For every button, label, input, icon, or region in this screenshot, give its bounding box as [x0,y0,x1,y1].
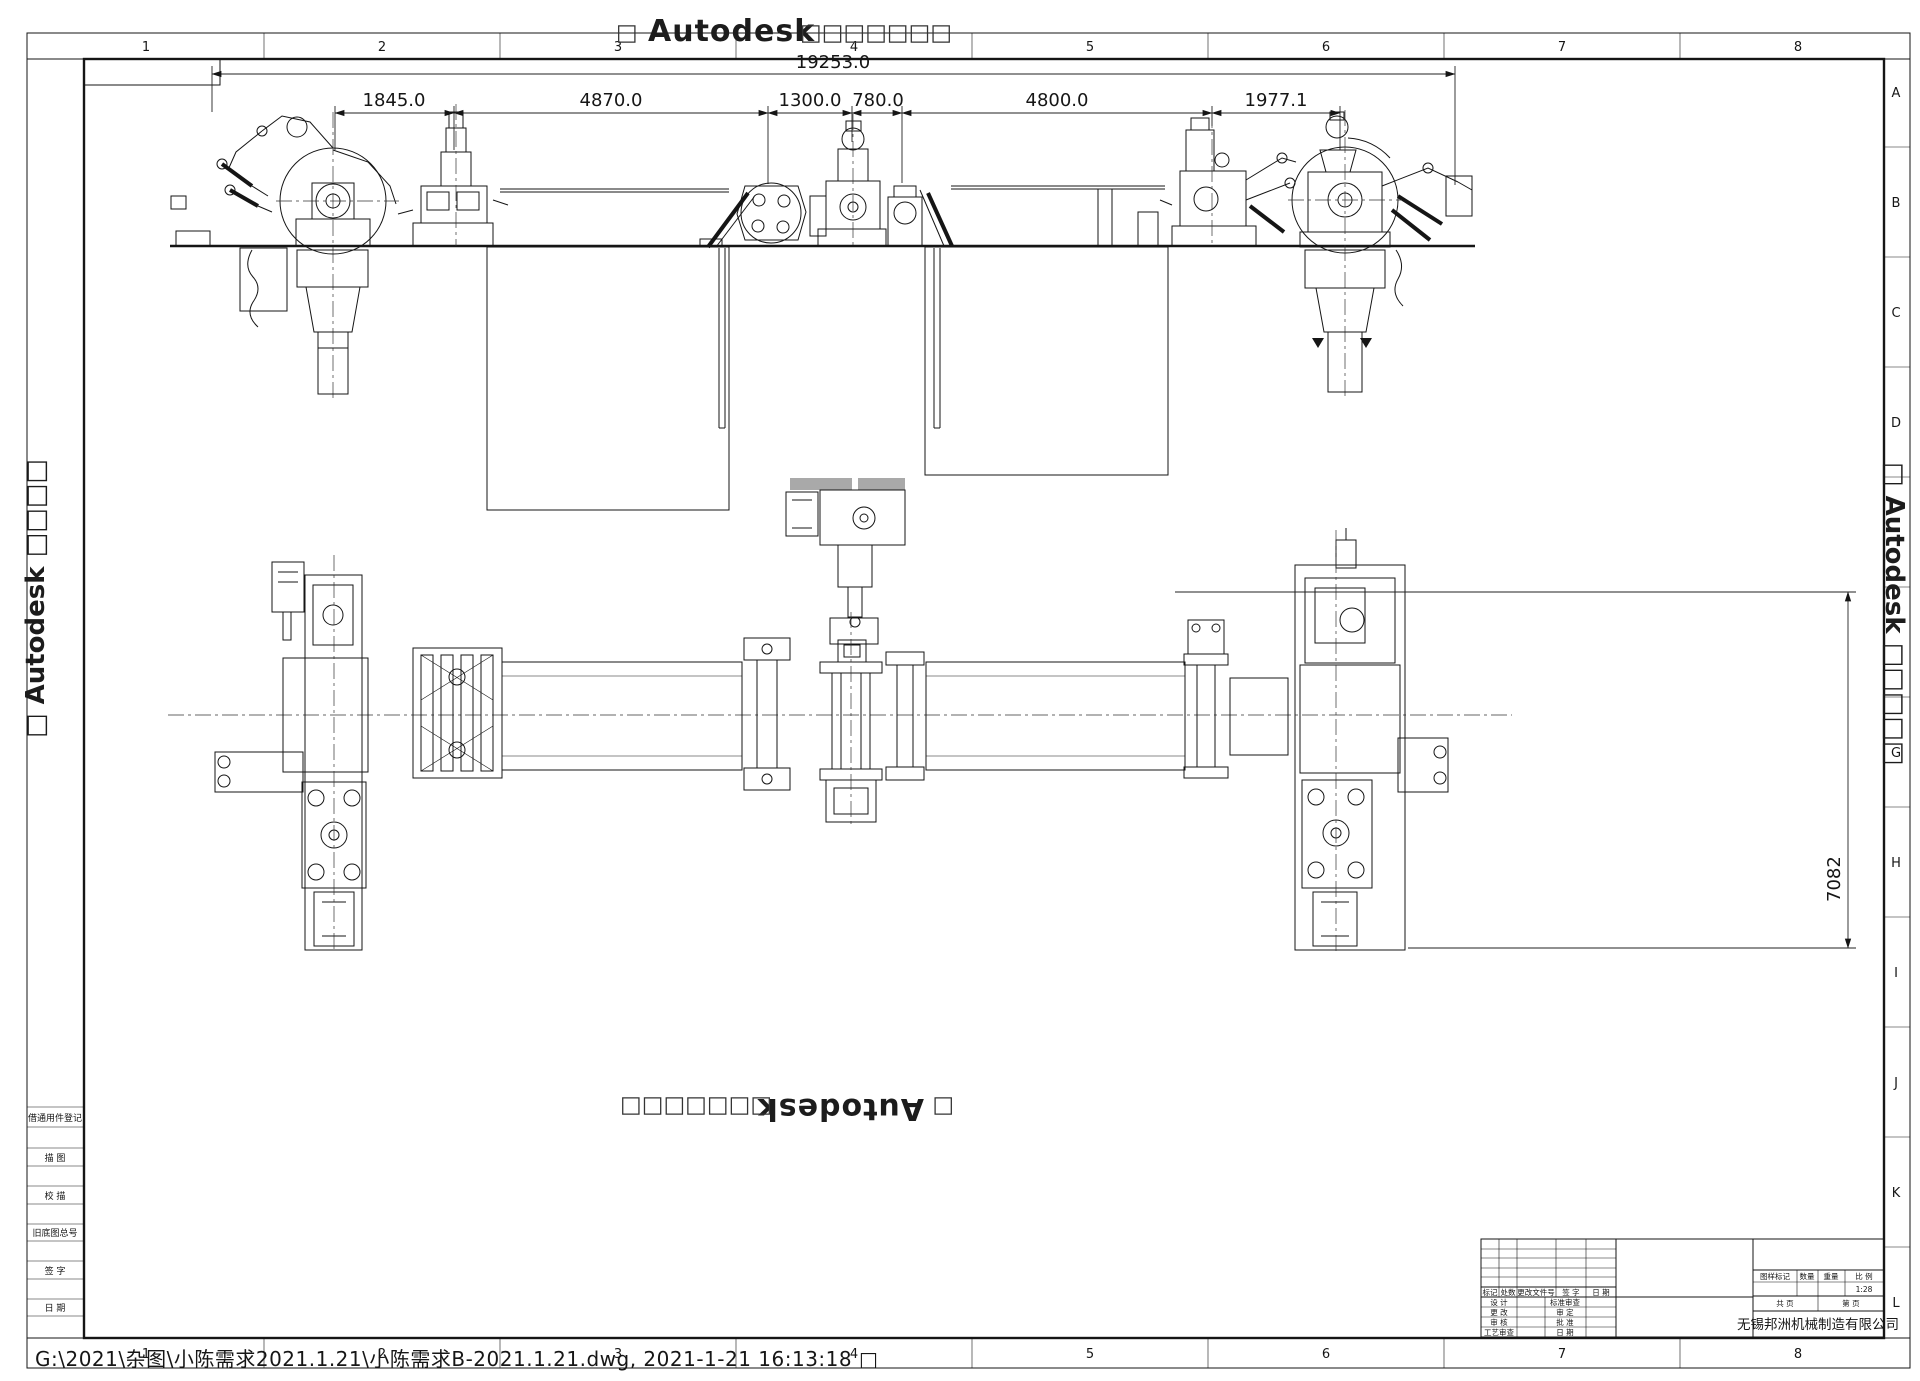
table-plan-1 [502,662,742,770]
bridle-roll-plan-1 [744,638,790,790]
sign-label: 标准审查 [1550,1297,1580,1307]
watermark-boxes: □□□□□□□ [800,20,952,46]
watermark-right: □ Autodesk □□□□□ [1879,462,1909,765]
cad-drawing-sheet: 1 2 3 4 5 6 7 8 1 2 3 4 5 6 7 8 A B C D … [0,0,1920,1381]
zone-number: 8 [1794,1347,1802,1362]
sign-label: 日 期 [1556,1328,1573,1337]
loop-pit-2 [925,247,1168,475]
dimension-overall: 19253.0 [212,52,1455,185]
dimension-plan-height: 7082 [1175,592,1856,948]
drawing-name-boxes [1616,1239,1753,1337]
zone-letter: C [1891,306,1900,321]
sign-label: 批 准 [1556,1317,1574,1327]
autodesk-watermark: Autodesk [648,14,815,49]
zone-number: 7 [1558,40,1566,55]
watermark-boxes: □□□□□□□ [620,1094,772,1120]
watermark-bottom: □ Autodesk □□□□□□□ [620,1091,954,1126]
exit-roll-stand-plan [1184,620,1228,778]
sheet-border [27,33,1910,1368]
pages-total: 共 页 [1776,1299,1794,1308]
entry-roll-stand-plan [413,648,502,778]
zone-number: 2 [378,40,386,55]
info-table: 图样标记 数量 重量 比 例 1:28 共 页 第 页 无锡邦洲机械制造有限公司 [1737,1239,1899,1337]
revision-header-row: 标记 处数 更改文件号 签 字 日 期 [1483,1287,1610,1297]
rev-header-cell: 标记 [1483,1287,1499,1297]
recoiler-elevation [1288,110,1472,399]
info-header-cell: 图样标记 [1760,1271,1790,1281]
side-strip-label: 旧底图总号 [32,1227,77,1239]
decoiler-elevation [217,112,399,399]
side-strip-label: 借通用件登记 [28,1112,82,1124]
watermark-box: □ [932,1094,954,1120]
zone-letter: K [1892,1186,1901,1201]
rev-header-cell: 处数 [1501,1287,1517,1297]
zone-letter: J [1893,1076,1898,1091]
dim-segment-value: 780.0 [852,90,904,111]
zone-letter: I [1894,966,1898,981]
zone-number: 6 [1322,40,1330,55]
zone-number: 5 [1086,40,1094,55]
sign-label: 更 改 [1490,1307,1508,1317]
elevation-view [170,104,1475,510]
file-path-text: G:\2021\杂图\小陈需求2021.1.21\小陈需求B-2021.1.21… [35,1347,878,1371]
dim-plan-height-value: 7082 [1824,856,1845,902]
rev-header-cell: 日 期 [1592,1288,1609,1297]
side-strip-label: 签 字 [45,1265,66,1277]
zone-letter: A [1892,86,1901,101]
loop-pit-gate [700,183,806,247]
dim-segment-value: 1977.1 [1245,90,1308,111]
side-strip-label: 日 期 [45,1303,66,1314]
info-header-cell: 数量 [1800,1271,1816,1281]
straightener-elevation [810,114,886,246]
feed-leveler-elevation [398,104,508,246]
zone-number: 1 [142,40,150,55]
overhead-drive-plan [786,478,905,627]
dim-segment-value: 4870.0 [580,90,643,111]
sign-label: 设 计 [1490,1297,1508,1307]
loop-post-1 [719,248,725,428]
rev-header-cell: 更改文件号 [1517,1287,1555,1297]
zone-number: 7 [1558,1347,1566,1362]
drawing-canvas: 1 2 3 4 5 6 7 8 1 2 3 4 5 6 7 8 A B C D … [0,0,1920,1381]
side-strip-label: 校 描 [45,1190,66,1202]
uncoiler-plan [215,555,368,952]
zone-number: 6 [1322,1347,1330,1362]
zone-number: 5 [1086,1347,1094,1362]
zone-letter: B [1892,196,1901,211]
side-label-strip: 借通用件登记 描 图 校 描 旧底图总号 签 字 日 期 [27,1107,84,1316]
top-zone-dividers [264,33,1680,59]
dim-segment-value: 1845.0 [363,90,426,111]
pages-current: 第 页 [1842,1298,1860,1308]
shear-plan [820,612,882,828]
bridle-roll-plan-2 [886,652,924,780]
zone-number: 8 [1794,40,1802,55]
zone-letter: L [1892,1296,1900,1311]
zone-letter: H [1891,856,1901,871]
loop-post-2 [934,248,940,428]
table-plan-2 [926,662,1185,770]
watermark-top: □ Autodesk □□□□□□□ [616,14,952,49]
zone-letter: D [1891,416,1901,431]
title-block: 标记 处数 更改文件号 签 字 日 期 设 计 更 改 审 核 工艺审查 标准审… [1481,1239,1899,1337]
sign-label: 审 定 [1556,1307,1574,1317]
corner-ref-box [84,59,220,85]
table-plan-3 [1230,678,1288,755]
dim-overall-value: 19253.0 [796,52,870,73]
scale-value: 1:28 [1856,1285,1873,1294]
info-header-cell: 比 例 [1855,1271,1872,1281]
side-strip-label: 描 图 [45,1152,66,1164]
company-name: 无锡邦洲机械制造有限公司 [1737,1317,1899,1333]
pass-line [500,186,1165,246]
rev-header-cell: 签 字 [1562,1287,1579,1297]
pinch-roll-elevation [888,186,952,246]
loop-pit-1 [487,247,729,510]
dim-segment-value: 1300.0 [779,90,842,111]
watermark-box: □ [616,20,638,46]
dim-segment-value: 4800.0 [1026,90,1089,111]
info-header-cell: 重量 [1824,1272,1840,1281]
plan-view: 7082 [168,478,1856,952]
sign-label: 工艺审查 [1484,1327,1514,1337]
sign-label: 审 核 [1490,1317,1508,1327]
exit-leveler-elevation [1160,112,1296,246]
watermark-left: □ Autodesk □□□□ [21,459,51,738]
autodesk-watermark: Autodesk [757,1091,924,1126]
